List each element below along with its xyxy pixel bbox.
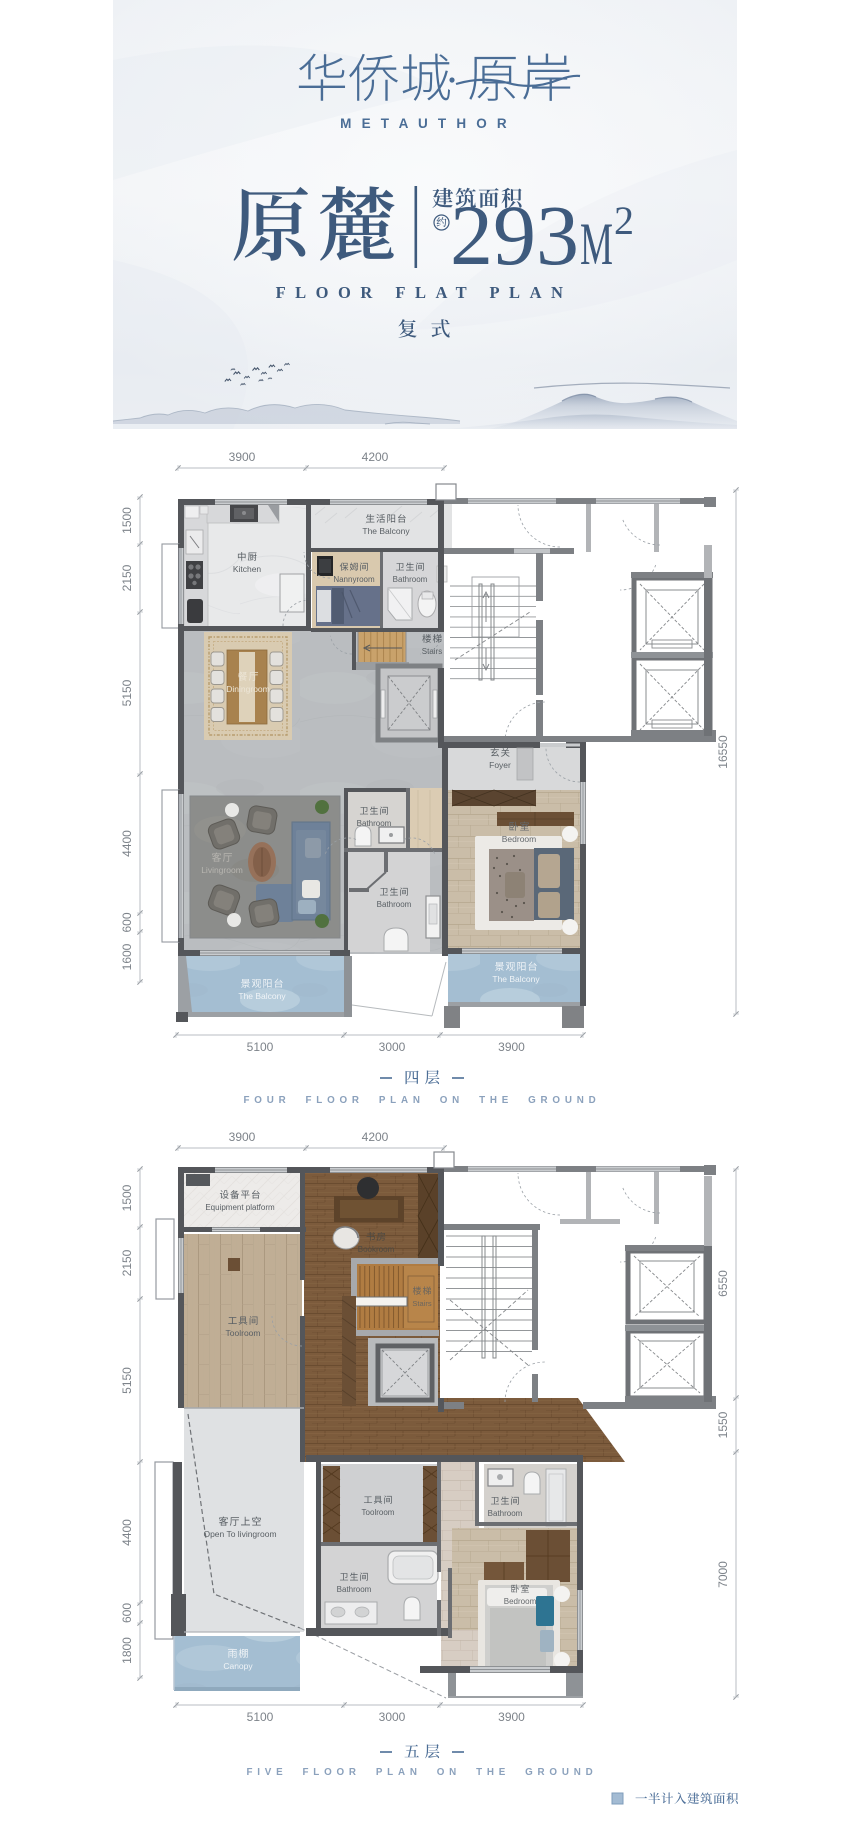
svg-text:The Balcony: The Balcony: [238, 991, 286, 1001]
svg-text:16550: 16550: [716, 735, 730, 769]
svg-text:Kitchen: Kitchen: [233, 564, 262, 574]
svg-text:2150: 2150: [120, 1249, 134, 1276]
svg-text:1550: 1550: [716, 1411, 730, 1438]
svg-text:4200: 4200: [362, 450, 389, 464]
svg-text:Stairs: Stairs: [412, 1299, 431, 1308]
svg-text:Diningroom: Diningroom: [226, 684, 269, 694]
svg-text:2150: 2150: [120, 564, 134, 591]
svg-text:4400: 4400: [120, 830, 134, 857]
svg-text:Livingroom: Livingroom: [201, 865, 243, 875]
svg-text:Bedroom: Bedroom: [502, 834, 537, 844]
svg-text:Toolroom: Toolroom: [226, 1328, 261, 1338]
svg-text:5100: 5100: [247, 1710, 274, 1724]
svg-text:The Balcony: The Balcony: [492, 974, 540, 984]
svg-text:1600: 1600: [120, 943, 134, 970]
svg-text:Bathroom: Bathroom: [488, 1509, 523, 1518]
svg-text:M E T A U T H O R: M E T A U T H O R: [340, 116, 510, 131]
svg-text:Bathroom: Bathroom: [377, 900, 412, 909]
svg-text:5150: 5150: [120, 679, 134, 706]
svg-text:1500: 1500: [120, 1184, 134, 1211]
svg-text:1800: 1800: [120, 1637, 134, 1664]
svg-text:FIVE FLOOR PLAN ON THE GR: FIVE FLOOR PLAN ON THE GROUND: [247, 1767, 598, 1778]
svg-text:3000: 3000: [379, 1710, 406, 1724]
svg-text:5100: 5100: [247, 1040, 274, 1054]
svg-text:Nannyroom: Nannyroom: [333, 575, 375, 584]
svg-text:Canopy: Canopy: [223, 1661, 253, 1671]
svg-text:Stairs: Stairs: [422, 647, 442, 656]
svg-text:FLOOR FLAT PLAN: FLOOR FLAT PLAN: [276, 283, 573, 302]
svg-text:600: 600: [120, 912, 134, 932]
svg-text:Bathroom: Bathroom: [393, 575, 428, 584]
svg-text:Open To livingroom: Open To livingroom: [203, 1529, 276, 1539]
svg-text:7000: 7000: [716, 1561, 730, 1588]
svg-text:6550: 6550: [716, 1270, 730, 1297]
svg-text:3000: 3000: [379, 1040, 406, 1054]
svg-text:3900: 3900: [498, 1710, 525, 1724]
svg-text:3900: 3900: [229, 1130, 256, 1144]
svg-text:5150: 5150: [120, 1367, 134, 1394]
svg-text:3900: 3900: [229, 450, 256, 464]
svg-text:Toolroom: Toolroom: [362, 1508, 395, 1517]
svg-text:FOUR FLOOR PLAN ON THE GR: FOUR FLOOR PLAN ON THE GROUND: [244, 1095, 601, 1106]
svg-text:3900: 3900: [498, 1040, 525, 1054]
svg-text:Equipment platform: Equipment platform: [205, 1203, 275, 1212]
svg-text:2: 2: [614, 198, 634, 243]
svg-text:Bedroom: Bedroom: [504, 1597, 537, 1606]
svg-text:Bathroom: Bathroom: [357, 819, 392, 828]
svg-text:293: 293: [450, 187, 579, 283]
svg-text:600: 600: [120, 1603, 134, 1623]
svg-text:1500: 1500: [120, 507, 134, 534]
svg-text:Bathroom: Bathroom: [337, 1585, 372, 1594]
svg-text:M: M: [580, 211, 613, 277]
svg-text:Foyer: Foyer: [489, 760, 511, 770]
svg-text:The Balcony: The Balcony: [362, 526, 410, 536]
svg-text:4400: 4400: [120, 1519, 134, 1546]
svg-text:Bookroom: Bookroom: [358, 1245, 395, 1254]
svg-text:4200: 4200: [362, 1130, 389, 1144]
